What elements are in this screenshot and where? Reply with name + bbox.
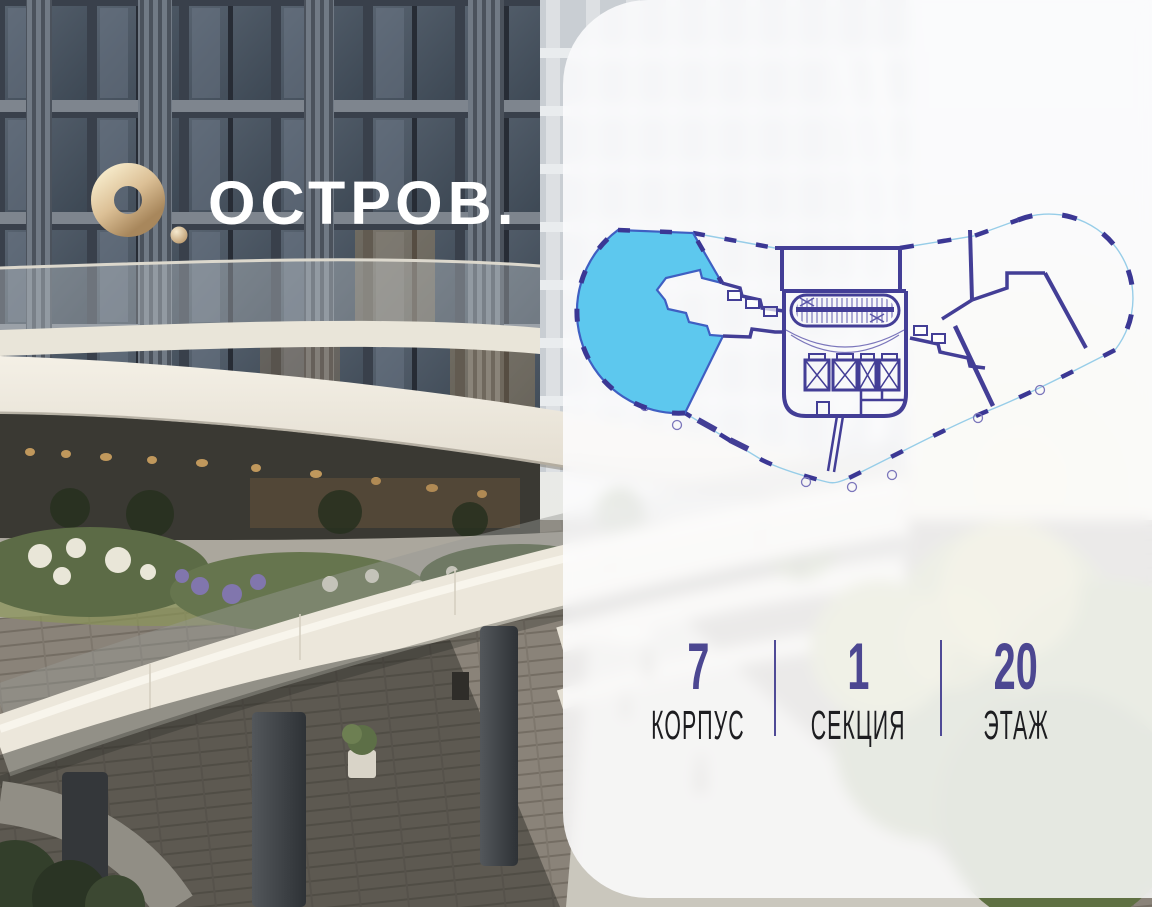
info-bar: 7 КОРПУС 1 СЕКЦИЯ 20 ЭТАЖ <box>622 634 1092 745</box>
section-info: 1 СЕКЦИЯ <box>776 634 940 745</box>
floor-plan <box>570 178 1150 508</box>
info-panel: 7 КОРПУС 1 СЕКЦИЯ 20 ЭТАЖ <box>563 0 1152 898</box>
stairwell <box>786 295 904 353</box>
building-label: КОРПУС <box>608 705 788 745</box>
building-info: 7 КОРПУС <box>622 634 774 745</box>
interior-walls <box>722 230 1086 416</box>
section-number: 1 <box>840 634 877 698</box>
floor-outline <box>685 214 1133 483</box>
selected-apartment-shape[interactable] <box>577 230 723 413</box>
floor-number: 20 <box>979 634 1052 698</box>
elevators <box>805 354 906 472</box>
floor-label: ЭТАЖ <box>953 705 1079 745</box>
floor-info: 20 ЭТАЖ <box>942 634 1090 745</box>
door-arcs <box>641 386 1045 492</box>
page: 7 КОРПУС 1 СЕКЦИЯ 20 ЭТАЖ <box>0 0 1152 907</box>
window-dashes <box>685 214 1133 483</box>
gold-ring-icon <box>90 154 192 248</box>
building-number: 7 <box>680 634 717 698</box>
brand-logo-text: ОСТРОВ. <box>208 169 519 234</box>
section-label: СЕКЦИЯ <box>767 705 949 745</box>
brand-logo[interactable]: ОСТРОВ. <box>90 154 519 248</box>
